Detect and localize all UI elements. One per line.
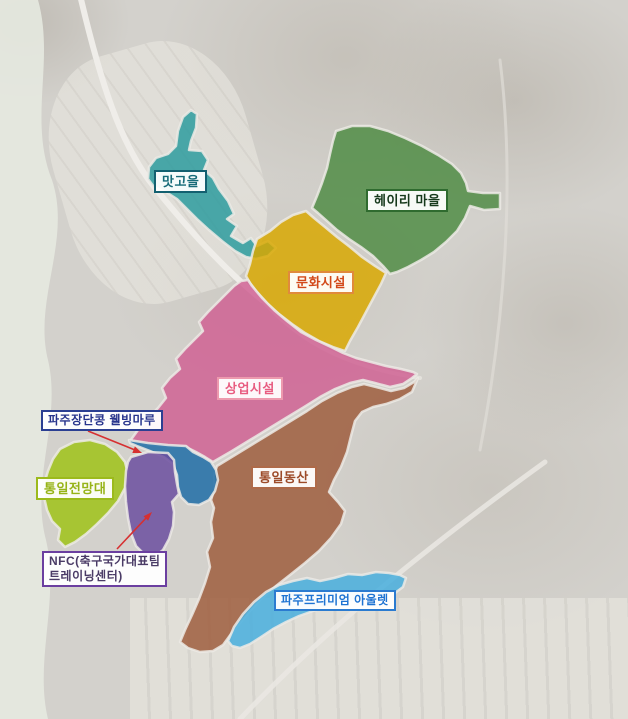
- road-right: [480, 60, 507, 450]
- label-commercial-facilities-text: 상업시설: [225, 381, 275, 396]
- label-matgoeul: 맛고을: [154, 170, 207, 193]
- label-nfc-line2: 트레이닝센터): [49, 569, 160, 584]
- zoning-map: 맛고을 헤이리 마을 문화시설 상업시설 통일동산 파주장단콩 웰빙마루 통일전…: [0, 0, 628, 719]
- label-paju-jangdankong-text: 파주장단콩 웰빙마루: [48, 413, 156, 427]
- region-nfc-training-center: [125, 452, 179, 557]
- label-heyri-village: 헤이리 마을: [366, 189, 448, 212]
- label-tongil-dongsan-text: 통일동산: [259, 470, 309, 485]
- label-paju-jangdankong-wellbeing-maru: 파주장단콩 웰빙마루: [41, 410, 163, 431]
- label-nfc-training-center: NFC(축구국가대표팀 트레이닝센터): [42, 551, 167, 587]
- map-overlay: [0, 0, 628, 719]
- label-nfc-line1: NFC(축구국가대표팀: [49, 554, 160, 569]
- river: [0, 0, 58, 719]
- label-matgoeul-text: 맛고을: [162, 174, 199, 189]
- label-cultural-facilities-text: 문화시설: [296, 275, 346, 290]
- label-paju-premium-outlet: 파주프리미엄 아울렛: [274, 590, 396, 611]
- label-cultural-facilities: 문화시설: [288, 271, 354, 294]
- label-tongil-observatory: 통일전망대: [36, 477, 114, 500]
- label-paju-premium-outlet-text: 파주프리미엄 아울렛: [281, 593, 389, 607]
- label-heyri-village-text: 헤이리 마을: [374, 193, 440, 208]
- label-commercial-facilities: 상업시설: [217, 377, 283, 400]
- label-tongil-dongsan: 통일동산: [251, 466, 317, 489]
- label-tongil-observatory-text: 통일전망대: [44, 481, 106, 496]
